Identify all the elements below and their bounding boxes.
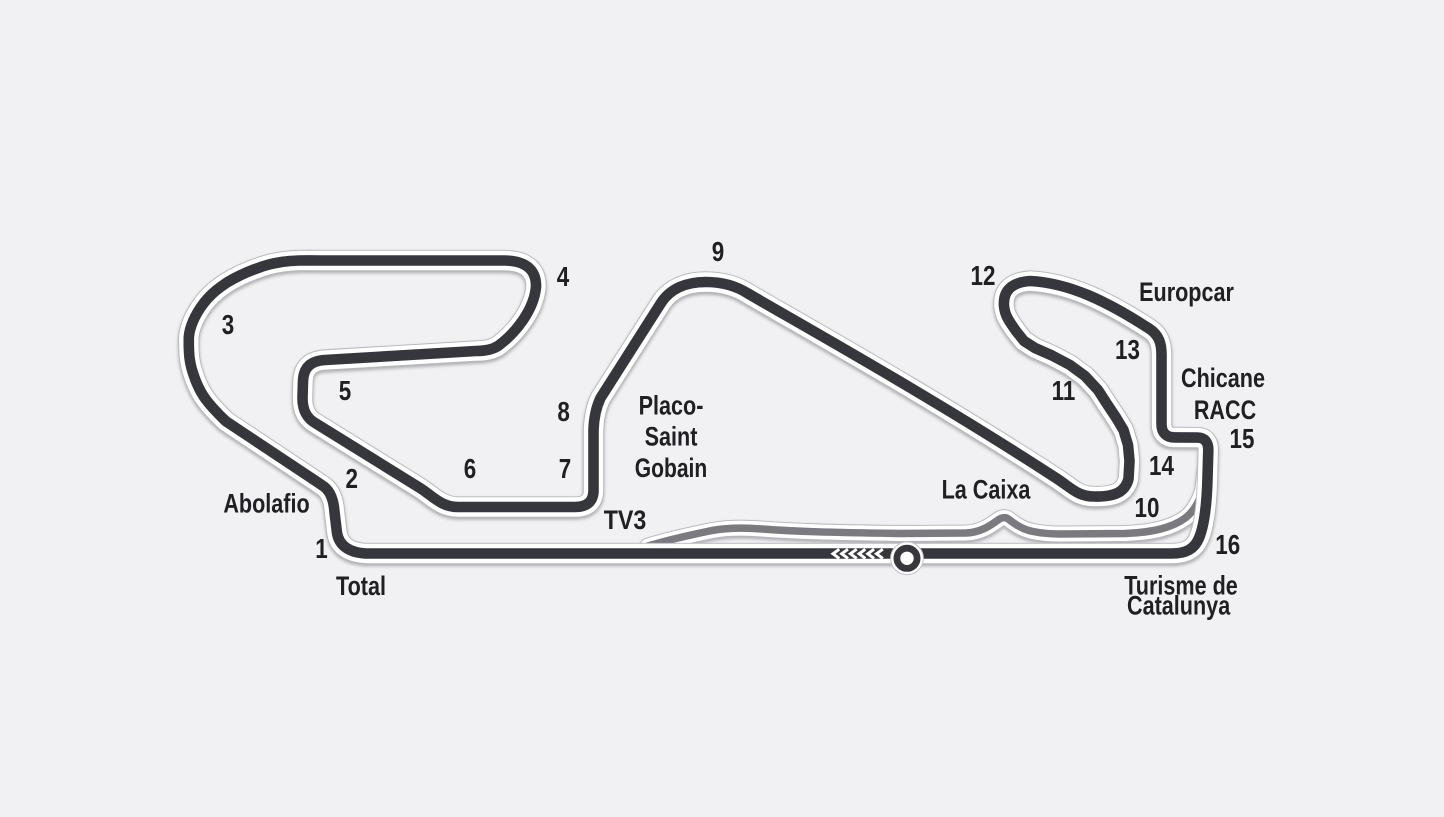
svg-text:1: 1: [315, 534, 327, 565]
svg-text:15: 15: [1230, 424, 1255, 455]
svg-text:13: 13: [1115, 335, 1140, 366]
svg-text:6: 6: [464, 454, 476, 485]
svg-text:8: 8: [557, 397, 569, 428]
svg-text:Total: Total: [336, 572, 386, 602]
svg-text:16: 16: [1215, 530, 1240, 561]
svg-text:3: 3: [222, 310, 234, 341]
svg-text:Europcar: Europcar: [1139, 278, 1234, 308]
svg-text:Placo-: Placo-: [639, 391, 704, 421]
svg-text:5: 5: [339, 376, 351, 407]
svg-text:RACC: RACC: [1194, 396, 1256, 426]
svg-text:12: 12: [971, 261, 996, 292]
svg-text:La Caixa: La Caixa: [942, 475, 1031, 505]
svg-text:7: 7: [559, 454, 571, 485]
svg-text:4: 4: [557, 262, 569, 293]
svg-text:9: 9: [712, 237, 724, 268]
svg-text:Saint: Saint: [645, 422, 698, 452]
svg-text:Gobain: Gobain: [635, 454, 708, 484]
svg-text:TV3: TV3: [604, 505, 647, 535]
svg-text:11: 11: [1052, 376, 1076, 407]
svg-text:Chicane: Chicane: [1181, 364, 1265, 394]
svg-text:10: 10: [1135, 493, 1160, 524]
svg-text:14: 14: [1149, 451, 1174, 482]
svg-text:2: 2: [345, 464, 357, 495]
svg-text:Abolafio: Abolafio: [223, 489, 309, 519]
svg-text:Catalunya: Catalunya: [1127, 592, 1231, 622]
